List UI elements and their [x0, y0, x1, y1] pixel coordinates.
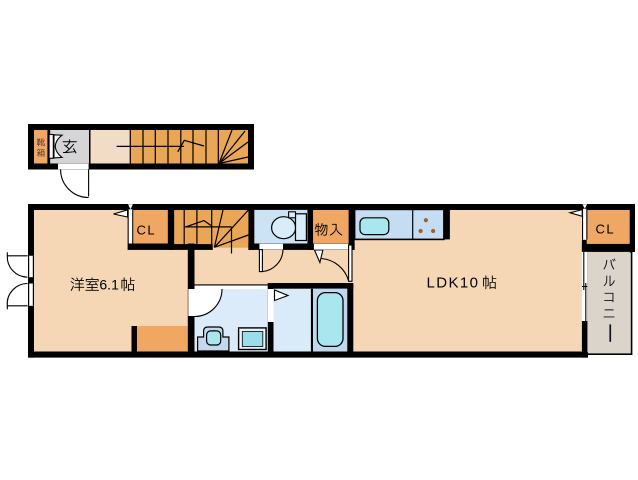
svg-text:CL: CL: [137, 223, 157, 238]
svg-text:6.1: 6.1: [99, 277, 119, 293]
svg-text:CL: CL: [596, 222, 616, 237]
svg-text:LDK10: LDK10: [427, 275, 480, 292]
